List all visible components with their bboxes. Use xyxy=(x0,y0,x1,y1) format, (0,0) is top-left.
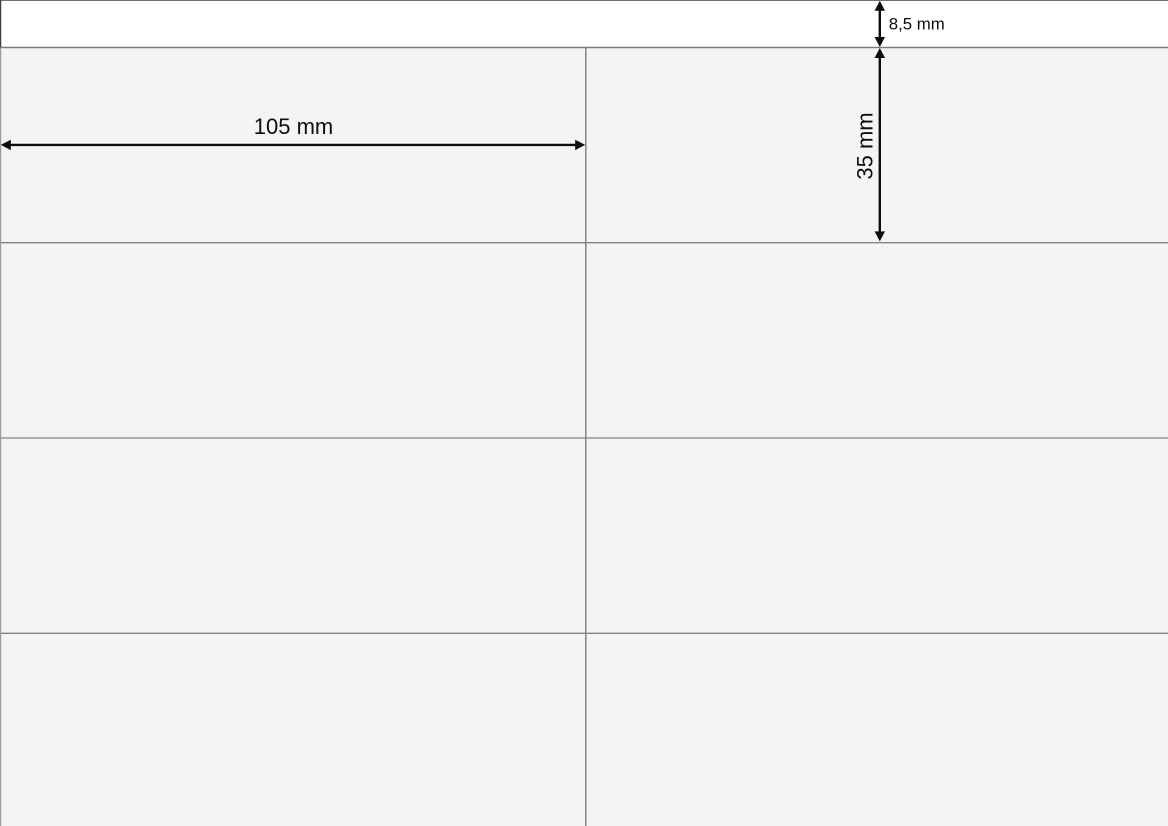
svg-text:8,5 mm: 8,5 mm xyxy=(889,14,945,33)
svg-text:35 mm: 35 mm xyxy=(852,112,877,179)
svg-text:105 mm: 105 mm xyxy=(254,114,333,139)
